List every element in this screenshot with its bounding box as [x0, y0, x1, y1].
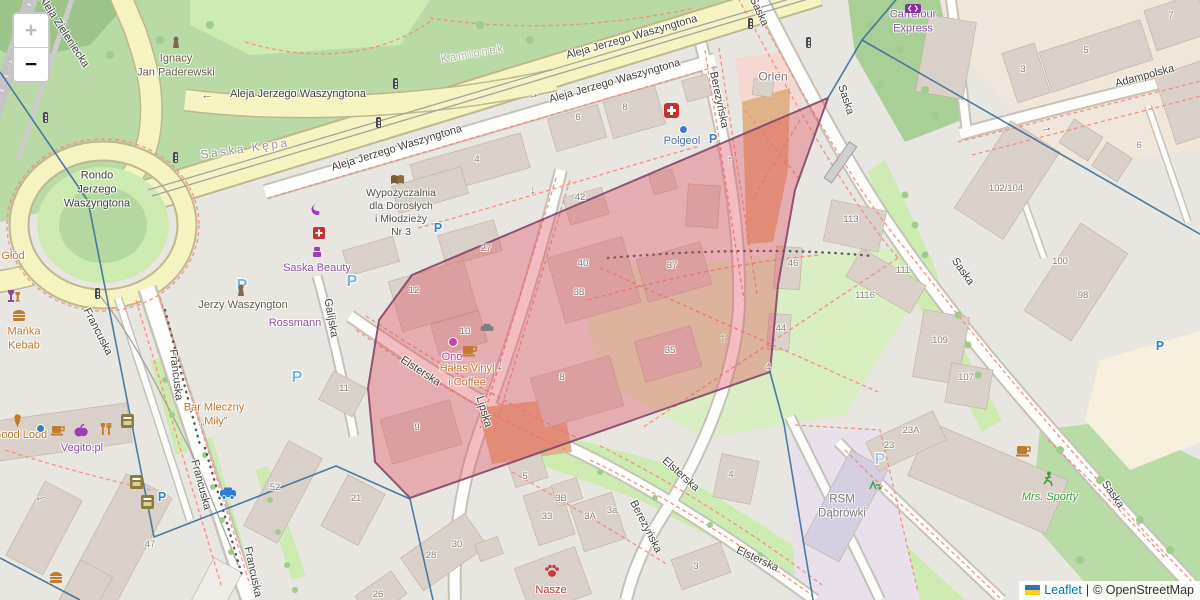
ukraine-flag-icon — [1025, 585, 1040, 595]
zoom-control: + − — [12, 12, 50, 83]
map-tiles — [0, 0, 1200, 600]
attribution-separator: | — [1086, 583, 1089, 597]
zoom-in-button[interactable]: + — [14, 14, 48, 47]
map-viewport[interactable]: Aleja Jerzego Waszyngtona Aleja Jerzego … — [0, 0, 1200, 600]
openstreetmap-link[interactable]: © OpenStreetMap — [1093, 583, 1194, 597]
leaflet-link[interactable]: Leaflet — [1044, 583, 1082, 597]
zoom-out-button[interactable]: − — [14, 48, 48, 81]
attribution-bar: Leaflet | © OpenStreetMap — [1019, 581, 1200, 600]
